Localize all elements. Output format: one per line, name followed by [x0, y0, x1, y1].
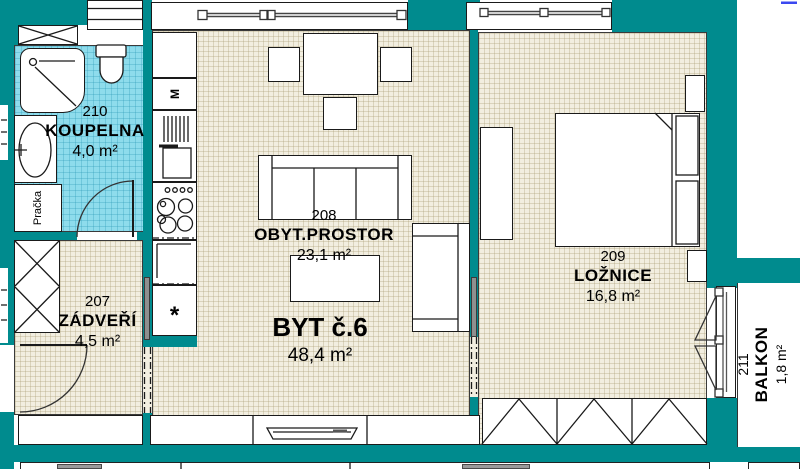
- washing-machine: Pračka: [14, 184, 62, 232]
- apartment-label: BYT č.6 48,4 m²: [220, 312, 420, 367]
- living-bedroom-door-leaf: [471, 277, 477, 337]
- floor-plan: Pračka M *: [0, 0, 800, 469]
- bathroom-door-opening: [77, 232, 137, 240]
- hall-living-opening: [143, 347, 152, 413]
- living-bedroom-opening: [470, 337, 478, 397]
- dining-chair-right: [380, 47, 412, 82]
- nightstand-top: [685, 75, 705, 112]
- bedroom-wardrobe-bottom: [482, 398, 707, 445]
- left-wall-niche-upper: [0, 105, 8, 160]
- living-name: OBYT.PROSTOR: [224, 225, 424, 246]
- washing-machine-label: Pračka: [32, 191, 44, 225]
- hall-bottom-cabinet: [18, 415, 143, 445]
- fridge-symbol: *: [170, 302, 179, 330]
- apartment-area: 48,4 m²: [220, 344, 420, 367]
- hall-label: 207 ZÁDVEŘÍ 4,5 m²: [30, 293, 165, 352]
- hall-area: 4,5 m²: [30, 332, 165, 352]
- entrance-door-opening: [0, 345, 14, 412]
- wall-top-bathroom: [18, 0, 88, 25]
- living-number: 208: [224, 207, 424, 225]
- bed: [555, 113, 700, 247]
- living-label: 208 OBYT.PROSTOR 23,1 m²: [224, 207, 424, 266]
- neighbour-unit-strip: [20, 462, 710, 469]
- hall-name: ZÁDVEŘÍ: [30, 311, 165, 332]
- dining-chair-left: [268, 47, 300, 82]
- wall-top-corner: [0, 0, 18, 45]
- wall-bathroom-bottom-right: [137, 232, 145, 240]
- bedroom-label: 209 LOŽNICE 16,8 m²: [528, 248, 698, 307]
- bathroom-label: 210 KOUPELNA 4,0 m²: [30, 103, 160, 162]
- wall-balcony-bottom: [737, 447, 800, 462]
- hall-number: 207: [30, 293, 165, 311]
- kitchen-sink-cabinet: [152, 240, 197, 285]
- blue-accent-line: [781, 2, 797, 5]
- bathroom-name: KOUPELNA: [30, 121, 160, 142]
- dining-table: [303, 33, 378, 95]
- bedroom-window: [466, 2, 612, 30]
- wall-balcony-top: [737, 258, 800, 283]
- bedroom-number: 209: [528, 248, 698, 266]
- dining-chair-bottom: [323, 97, 357, 130]
- bathroom-number: 210: [30, 103, 160, 121]
- neighbour-furniture-2: [462, 464, 530, 469]
- kitchen-microwave-label: M: [168, 89, 182, 99]
- neighbour-unit-strip-right: [748, 462, 800, 469]
- wall-right-upper: [707, 0, 737, 288]
- neighbour-furniture-1: [57, 464, 102, 469]
- bathroom-area: 4,0 m²: [30, 142, 160, 162]
- bedroom-wardrobe-left: [480, 127, 513, 240]
- left-wall-niche-lower: [0, 268, 8, 343]
- balcony-label: 211 BALKON 1,8 m²: [710, 307, 800, 422]
- living-area: 23,1 m²: [224, 246, 424, 266]
- bathroom-cabinet: [18, 25, 78, 45]
- balcony-name: BALKON: [752, 327, 773, 403]
- living-window: [151, 2, 408, 30]
- wall-bathroom-bottom-left: [14, 232, 77, 240]
- bedroom-area: 16,8 m²: [528, 287, 698, 307]
- balcony-number: 211: [735, 353, 752, 375]
- kitchen-upper-cabinet: [152, 32, 197, 78]
- bedroom-name: LOŽNICE: [528, 266, 698, 287]
- tv-cabinet: [150, 415, 480, 445]
- apartment-title: BYT č.6: [220, 312, 420, 344]
- bathroom-window: [87, 0, 143, 30]
- balcony-area: 1,8 m²: [773, 345, 790, 385]
- kitchen-cooktop: [152, 182, 197, 240]
- wall-bottom: [0, 445, 737, 462]
